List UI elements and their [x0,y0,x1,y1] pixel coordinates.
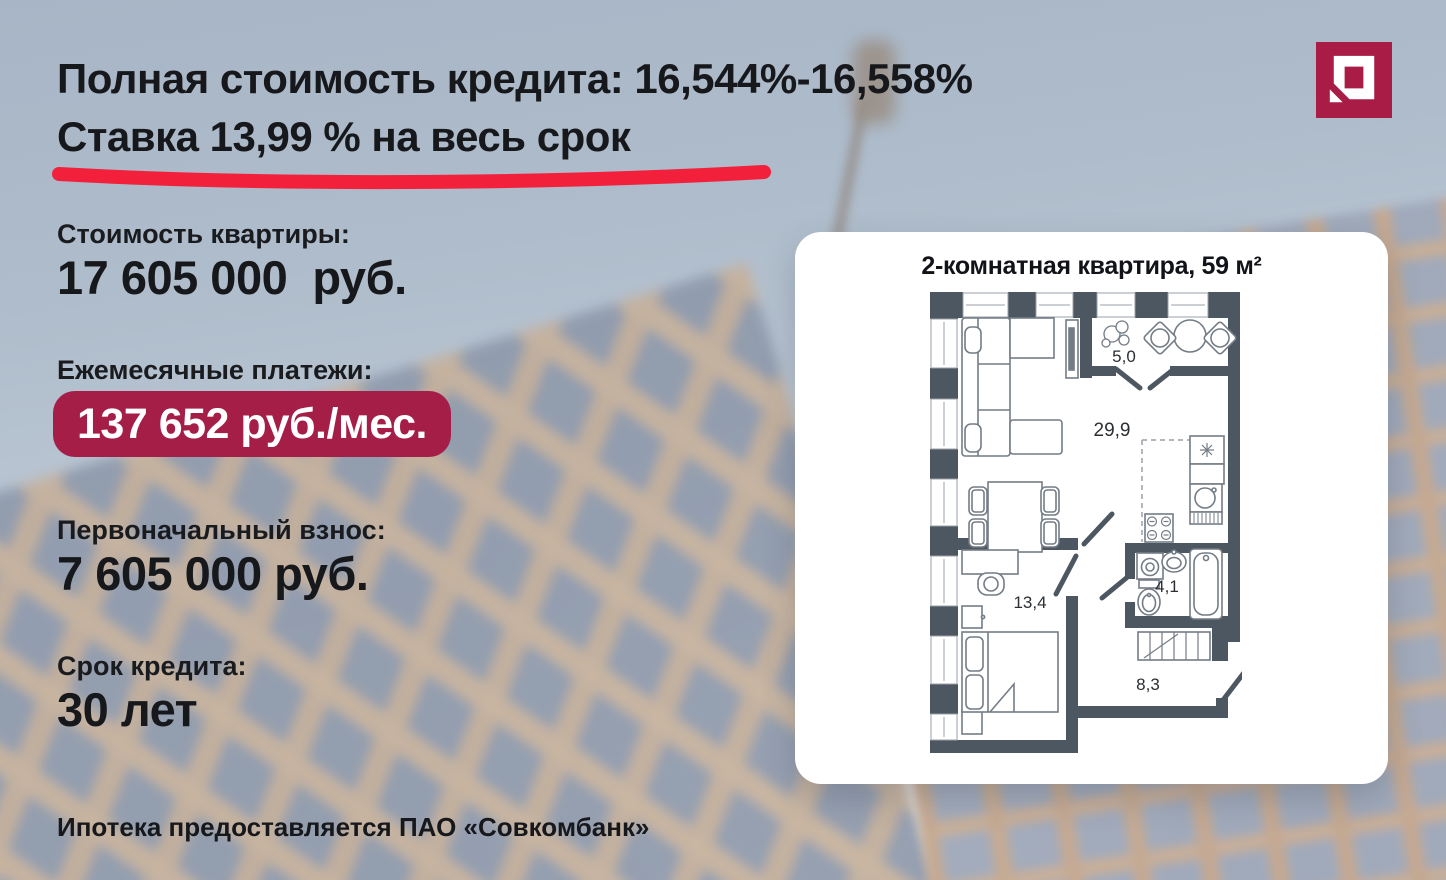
term-label: Срок кредита: [57,650,247,682]
downpayment-value: 7 605 000 руб. [57,546,368,602]
room-label-bedroom: 13,4 [1013,593,1046,612]
room-label-balcony: 5,0 [1112,347,1136,366]
wardrobe [1138,632,1210,660]
dining-table [969,482,1059,552]
monthly-payment-badge: 137 652 руб./мес. [53,391,451,457]
floorplan-svg: 5,0 29,9 13,4 4,1 8,3 [928,290,1242,764]
headline-line-2: Ставка 13,99 % на весь срок [57,108,972,166]
room-label-bathroom: 4,1 [1155,577,1179,596]
price-label: Стоимость квартиры: [57,218,350,250]
sofa [962,318,1062,456]
logo-background [1316,42,1392,118]
room-label-hallway: 8,3 [1136,675,1160,694]
bedroom-furniture [962,550,1058,734]
floorplan-card: 2-комнатная квартира, 59 м² [795,232,1388,784]
developer-logo [1316,42,1392,118]
kitchen [1142,436,1224,542]
price-value: 17 605 000 руб. [57,250,407,306]
headline-line-1: Полная стоимость кредита: 16,544%-16,558… [57,50,972,108]
red-underline [50,162,774,192]
tv [1066,320,1078,378]
room-label-living: 29,9 [1094,420,1131,441]
monthly-label: Ежемесячные платежи: [57,354,373,386]
term-value: 30 лет [57,682,197,738]
balcony-plant [1102,321,1129,347]
headline: Полная стоимость кредита: 16,544%-16,558… [57,50,972,166]
card-title: 2-комнатная квартира, 59 м² [795,252,1388,281]
balcony-table [1174,320,1206,352]
downpayment-label: Первоначальный взнос: [57,514,386,546]
mortgage-promo-poster: Полная стоимость кредита: 16,544%-16,558… [0,0,1446,880]
bank-disclaimer: Ипотека предоставляется ПАО «Совкомбанк» [57,812,649,843]
bathroom-fixtures [1137,549,1222,619]
